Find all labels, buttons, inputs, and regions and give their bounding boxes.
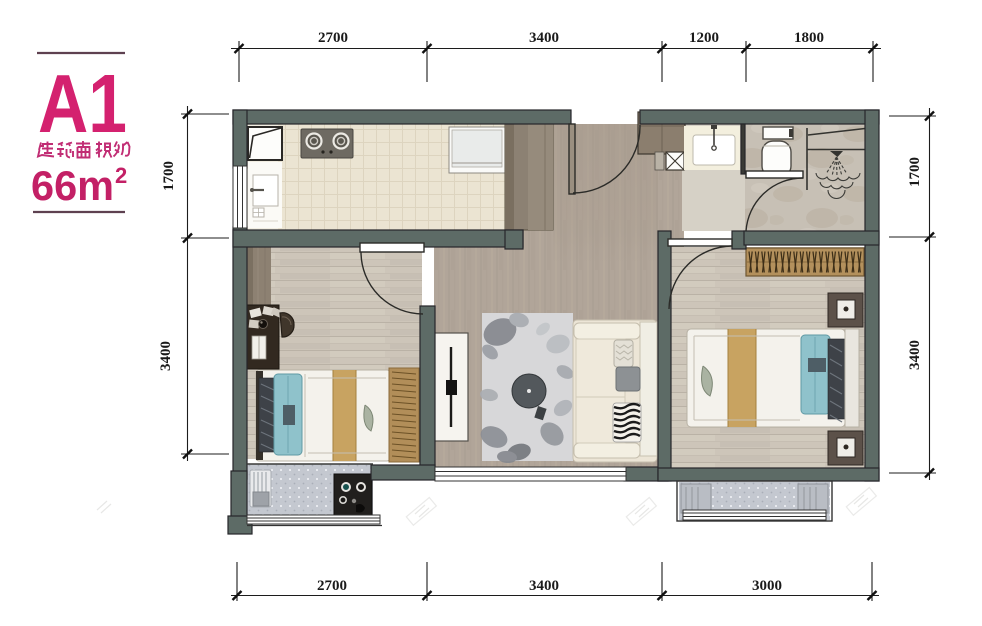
svg-text:A1: A1 [38,57,127,150]
svg-text:1700: 1700 [907,157,923,187]
svg-text:3400: 3400 [529,578,559,594]
svg-text:3400: 3400 [158,341,174,371]
svg-text:3400: 3400 [907,340,923,370]
svg-text:2: 2 [115,163,127,188]
svg-text:3000: 3000 [752,578,782,594]
svg-text:1700: 1700 [161,161,177,191]
svg-text:2700: 2700 [317,578,347,594]
svg-text:2700: 2700 [318,30,348,46]
svg-text:3400: 3400 [529,30,559,46]
svg-text:1800: 1800 [794,30,824,46]
svg-text:66m: 66m [31,162,114,209]
svg-text:1200: 1200 [689,30,719,46]
